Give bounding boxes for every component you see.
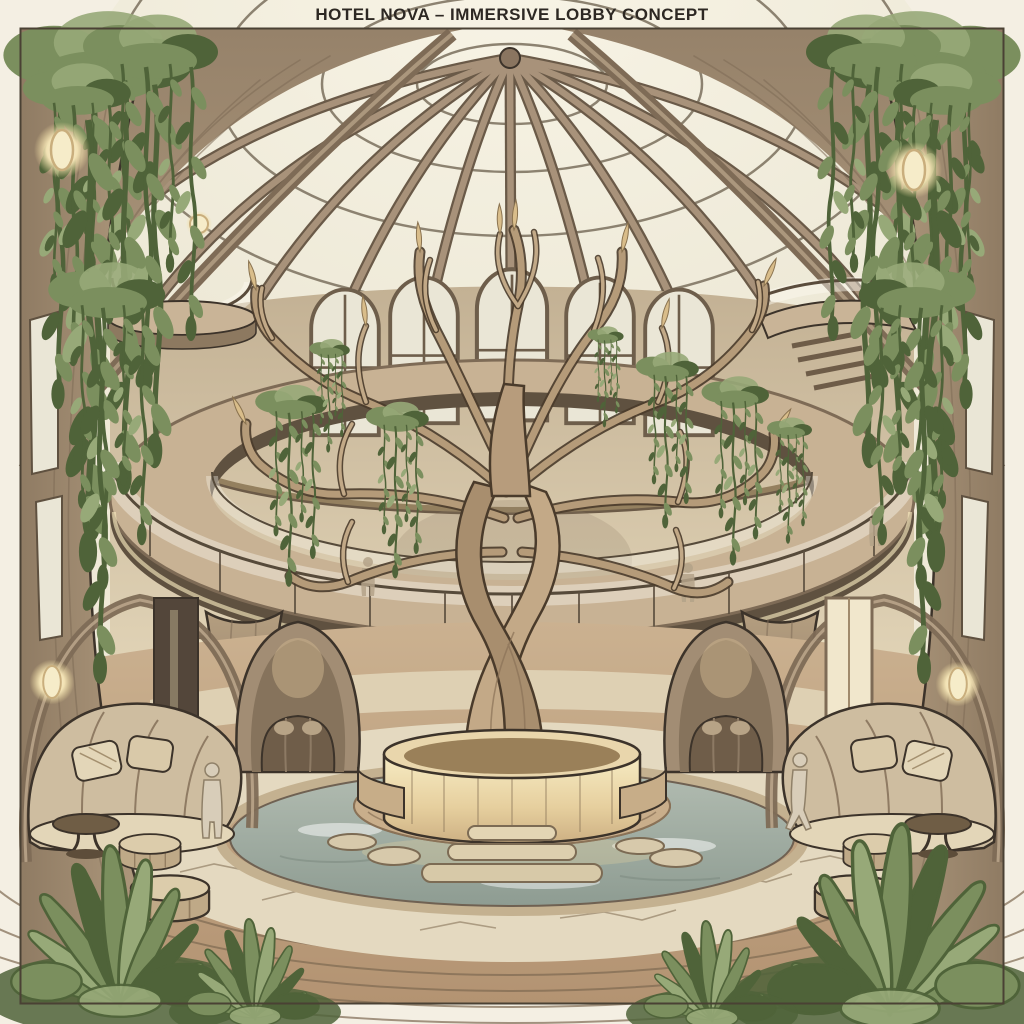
concept-illustration: HOTEL NOVA – IMMERSIVE LOBBY CONCEPT: [0, 0, 1024, 1024]
dome-apex-hub: [500, 48, 520, 68]
stepping-stone: [368, 847, 420, 865]
throw-pillow: [126, 735, 174, 773]
lobby-scene: [0, 0, 1024, 1024]
oval-sconce: [886, 142, 942, 198]
step: [448, 844, 576, 860]
step: [422, 864, 602, 882]
planter-soil: [404, 738, 620, 774]
stepping-stone: [650, 849, 702, 867]
oval-sconce: [936, 662, 981, 707]
step: [468, 826, 556, 840]
oval-sconce: [34, 122, 90, 178]
oval-sconce: [30, 660, 75, 705]
page-title: HOTEL NOVA – IMMERSIVE LOBBY CONCEPT: [0, 5, 1024, 25]
stepping-stone: [328, 834, 376, 850]
